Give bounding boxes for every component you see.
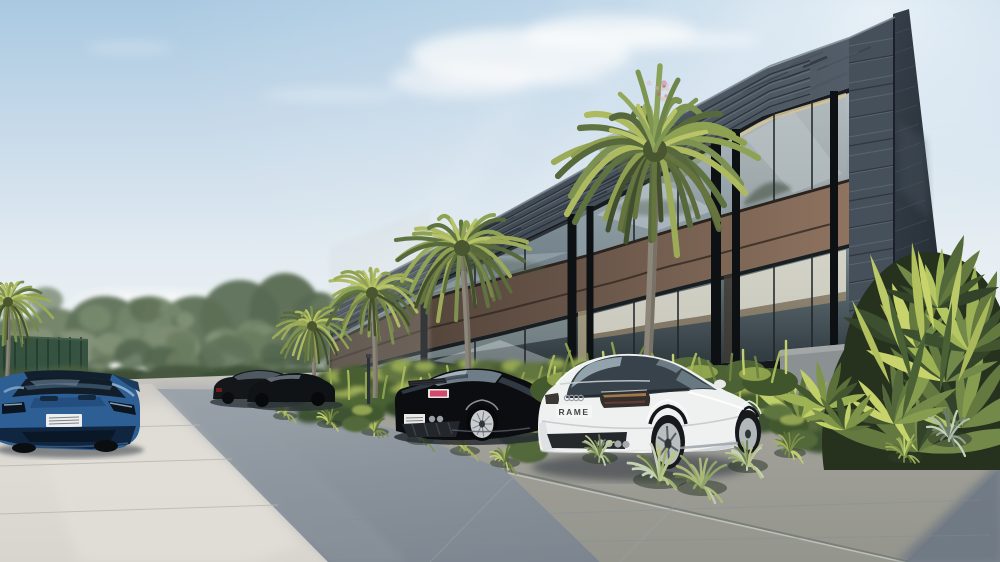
svg-text:RAME: RAME bbox=[558, 407, 589, 417]
